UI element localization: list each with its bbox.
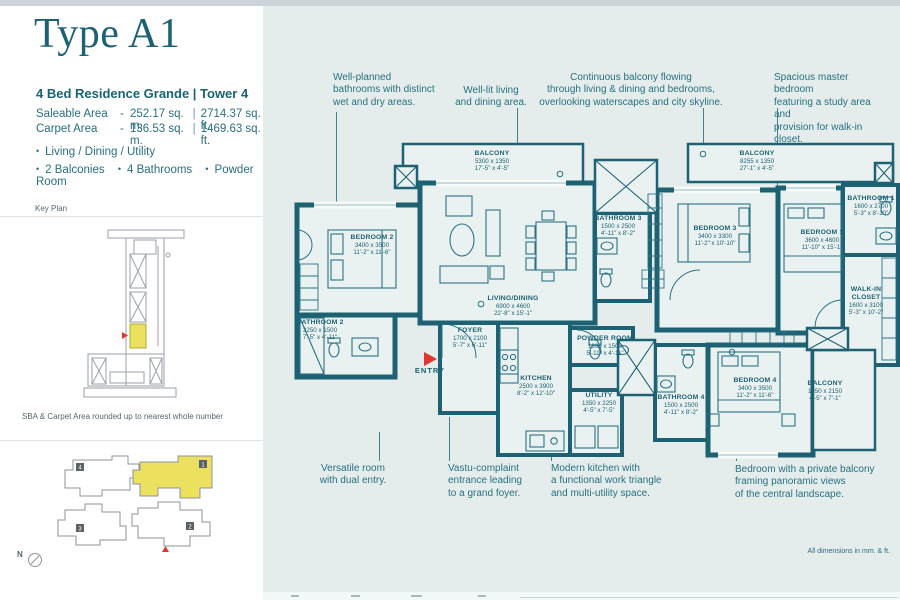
room-dim-mm: 3400 x 3500 (719, 385, 791, 392)
room-dim-mm: 3400 x 3500 (336, 242, 408, 249)
room-dim-ft: 4'-11" x 8'-2" (645, 409, 717, 416)
annotation-versatile-room: Versatile room with dual entry. (312, 463, 394, 488)
site-plan-diagram: 4 1 3 2 (40, 448, 225, 563)
room-dim-ft: 27'-1" x 4'-5" (721, 165, 793, 172)
room-name: LIVING/DINING (477, 295, 549, 303)
room-name: BATHROOM 2 (284, 319, 356, 327)
site-plan-tower-3 (58, 504, 126, 545)
room-label-balcony-top-right: BALCONY 8255 x 1350 27'-1" x 4'-5" (721, 150, 793, 173)
room-label-balcony-top-left: BALCONY 5300 x 1350 17'-5" x 4'-5" (456, 150, 528, 173)
room-dim-ft: 7'-5" x 4'-11" (284, 334, 356, 341)
dimensions-note: All dimensions in mm. & ft. (770, 548, 890, 555)
room-name: BALCONY (721, 150, 793, 158)
residence-subtitle: 4 Bed Residence Grande | Tower 4 (36, 86, 256, 101)
room-dim-ft: 22'-8" x 15'-1" (477, 310, 549, 317)
room-bedroom-2 (297, 205, 420, 315)
bullet-icon: • (36, 164, 45, 174)
room-dim-ft: 11'-2" x 11'-6" (336, 249, 408, 256)
room-label-powder-room: POWDER ROOM 1800 x 1500 5'-11" x 4'-11" (569, 335, 641, 358)
site-plan-tower-2 (132, 502, 210, 546)
room-dim-ft: 5'-11" x 4'-11" (569, 350, 641, 357)
feature-balconies: 2 Balconies (45, 164, 114, 176)
clipped-tab-mark (351, 595, 360, 597)
entry-label: ENTRY (408, 366, 452, 375)
key-plan-tower-diagram (70, 226, 215, 402)
room-name: POWDER ROOM (569, 335, 641, 343)
room-dim-ft: 17'-5" x 4'-5" (456, 165, 528, 172)
key-plan-unit-marker-icon (122, 332, 128, 339)
room-label-walk-in-closet: WALK-IN CLOSET 1600 x 3100 5'-3" x 10'-2… (846, 286, 886, 317)
clipped-tab-mark (478, 595, 486, 597)
room-dim-mm: 5300 x 1350 (456, 158, 528, 165)
compass-north-icon: N (14, 546, 48, 570)
carpet-area-row: Carpet Area - 136.53 sq. m. | 1469.63 sq… (36, 123, 261, 147)
room-dim-mm: 1350 x 2150 (797, 388, 853, 395)
dash: - (120, 123, 130, 147)
annotation-modern-kitchen: Modern kitchen with a functional work tr… (551, 463, 681, 500)
room-dim-ft: 5'-3" x 10'-2" (846, 309, 886, 316)
room-dim-mm: 6900 x 4600 (477, 303, 549, 310)
room-label-foyer: FOYER 1700 x 2100 5'-7" x 6'-11" (434, 327, 506, 350)
page-title: Type A1 (34, 10, 254, 58)
bullet-icon: • (36, 146, 45, 156)
room-dim-mm: 1600 x 3100 (846, 302, 886, 309)
carpet-area-imperial: 1469.63 sq. ft. (201, 123, 261, 147)
features-row-1: •Living / Dining / Utility (36, 146, 261, 158)
room-dim-mm: 2500 x 3900 (500, 383, 572, 390)
floor-plan-page: Type A1 4 Bed Residence Grande | Tower 4… (0, 0, 900, 600)
carpet-area-metric: 136.53 sq. m. (130, 123, 188, 147)
room-name: BATHROOM 1 (843, 195, 899, 203)
room-dim-ft: 5'-3" x 8'-10" (843, 210, 899, 217)
room-label-bedroom-4: BEDROOM 4 3400 x 3500 11'-2" x 11'-6" (719, 377, 791, 400)
site-plan-marker-icon (162, 546, 169, 552)
room-dim-ft: 11'-10" x 15'-1" (786, 244, 858, 251)
divider (0, 440, 263, 441)
room-dim-ft: 4'-11" x 8'-2" (582, 230, 654, 237)
feature-living-dining-utility: Living / Dining / Utility (45, 146, 165, 158)
room-label-bedroom-1: BEDROOM 1 3600 x 4600 11'-10" x 15'-1" (786, 229, 858, 252)
room-name: BEDROOM 3 (679, 225, 751, 233)
room-dim-mm: 1350 x 2250 (563, 400, 635, 407)
features-row-2: •2 Balconies •4 Bathrooms •Powder Room (36, 164, 261, 188)
room-label-kitchen: KITCHEN 2500 x 3900 8'-2" x 12'-10" (500, 375, 572, 398)
room-dim-ft: 8'-2" x 12'-10" (500, 390, 572, 397)
room-label-bathroom-4: BATHROOM 4 1500 x 2500 4'-11" x 8'-2" (645, 394, 717, 417)
bullet-icon: • (118, 164, 127, 174)
room-dim-mm: 1600 x 2700 (843, 203, 899, 210)
room-name: FOYER (434, 327, 506, 335)
room-dim-mm: 3600 x 4600 (786, 237, 858, 244)
clipped-tab-mark (411, 595, 422, 597)
room-label-balcony-bottom-right: BALCONY 1350 x 2150 4'-5" x 7'-1" (797, 380, 853, 403)
room-name: BATHROOM 4 (645, 394, 717, 402)
compass-n-label: N (17, 550, 23, 559)
annotation-bathrooms: Well-planned bathrooms with distinct wet… (333, 72, 449, 109)
room-dim-ft: 5'-7" x 6'-11" (434, 342, 506, 349)
room-dim-mm: 2250 x 1500 (284, 327, 356, 334)
room-dim-ft: 4'-5" x 7'-1" (797, 395, 853, 402)
site-plan-tower-4 (65, 456, 139, 496)
annotation-master-bedroom: Spacious master bedroom featuring a stud… (774, 72, 890, 146)
room-name: UTILITY (563, 392, 635, 400)
divider (0, 216, 263, 217)
key-plan-label: Key Plan (35, 204, 67, 213)
room-label-utility: UTILITY 1350 x 2250 4'-5" x 7'-5" (563, 392, 635, 415)
room-name: WALK-IN CLOSET (846, 286, 886, 302)
room-bedroom-3 (657, 190, 778, 330)
room-dim-ft: 4'-5" x 7'-5" (563, 407, 635, 414)
key-plan-highlighted-unit (130, 324, 146, 348)
room-label-bathroom-2: BATHROOM 2 2250 x 1500 7'-5" x 4'-11" (284, 319, 356, 342)
room-label-bathroom-1: BATHROOM 1 1600 x 2700 5'-3" x 8'-10" (843, 195, 899, 218)
carpet-area-label: Carpet Area (36, 123, 120, 147)
room-label-living-dining: LIVING/DINING 6900 x 4600 22'-8" x 15'-1… (477, 295, 549, 318)
clipped-tab-mark (291, 595, 299, 597)
feature-bathrooms: 4 Bathrooms (127, 164, 202, 176)
room-name: BEDROOM 4 (719, 377, 791, 385)
pipe-separator: | (188, 123, 201, 147)
entry-arrow-icon (424, 352, 437, 366)
room-dim-ft: 11'-2" x 11'-6" (719, 392, 791, 399)
room-name: BEDROOM 2 (336, 234, 408, 242)
room-dim-mm: 8255 x 1350 (721, 158, 793, 165)
bottom-tabs-clipped[interactable] (263, 592, 900, 600)
bullet-icon: • (205, 164, 214, 174)
room-dim-mm: 1700 x 2100 (434, 335, 506, 342)
room-name: BALCONY (456, 150, 528, 158)
room-label-bedroom-3: BEDROOM 3 3400 x 3300 11'-2" x 10'-10" (679, 225, 751, 248)
annotation-continuous-balcony: Continuous balcony flowing through livin… (535, 72, 727, 109)
annotation-living-dining: Well-lit living and dining area. (447, 85, 535, 110)
room-dim-mm: 3400 x 3300 (679, 233, 751, 240)
room-name: KITCHEN (500, 375, 572, 383)
room-dim-mm: 1800 x 1500 (569, 343, 641, 350)
room-name: BEDROOM 1 (786, 229, 858, 237)
annotation-vastu-entrance: Vastu-complaint entrance leading to a gr… (448, 463, 538, 500)
annotation-private-balcony: Bedroom with a private balcony framing p… (735, 464, 895, 501)
room-name: BATHROOM 3 (582, 215, 654, 223)
room-label-bedroom-2: BEDROOM 2 3400 x 3500 11'-2" x 11'-6" (336, 234, 408, 257)
clipped-tab-line (520, 597, 898, 598)
room-label-bathroom-3: BATHROOM 3 1500 x 2500 4'-11" x 8'-2" (582, 215, 654, 238)
room-dim-mm: 1500 x 2500 (582, 223, 654, 230)
area-note: SBA & Carpet Area rounded up to nearest … (22, 412, 252, 421)
room-dim-ft: 11'-2" x 10'-10" (679, 240, 751, 247)
room-name: BALCONY (797, 380, 853, 388)
room-dim-mm: 1500 x 2500 (645, 402, 717, 409)
